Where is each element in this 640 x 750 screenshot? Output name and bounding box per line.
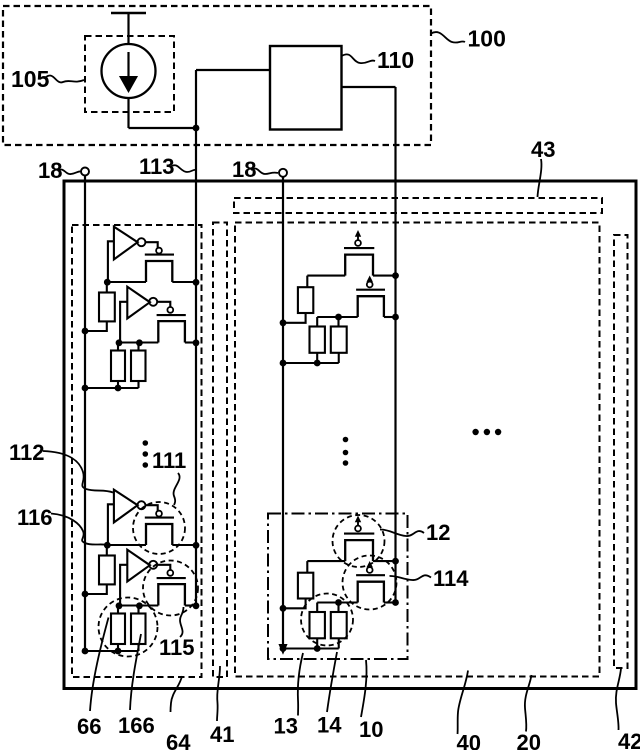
svg-text:14: 14: [317, 713, 342, 738]
svg-text:43: 43: [531, 137, 555, 162]
svg-text:64: 64: [166, 730, 191, 750]
svg-text:66: 66: [77, 714, 101, 739]
svg-text:40: 40: [457, 731, 481, 750]
svg-text:42: 42: [618, 729, 640, 750]
svg-text:113: 113: [139, 154, 175, 179]
svg-text:166: 166: [118, 713, 155, 738]
svg-text:112: 112: [9, 440, 45, 465]
svg-text:20: 20: [517, 730, 541, 750]
svg-text:115: 115: [159, 635, 195, 660]
svg-text:111: 111: [152, 448, 186, 473]
svg-text:13: 13: [274, 714, 298, 739]
svg-text:105: 105: [11, 66, 50, 92]
svg-text:114: 114: [433, 566, 469, 591]
svg-text:110: 110: [377, 47, 414, 73]
svg-text:12: 12: [426, 520, 450, 545]
svg-text:100: 100: [468, 26, 506, 52]
svg-text:10: 10: [359, 717, 383, 742]
svg-text:116: 116: [17, 505, 53, 530]
svg-text:41: 41: [210, 722, 234, 747]
